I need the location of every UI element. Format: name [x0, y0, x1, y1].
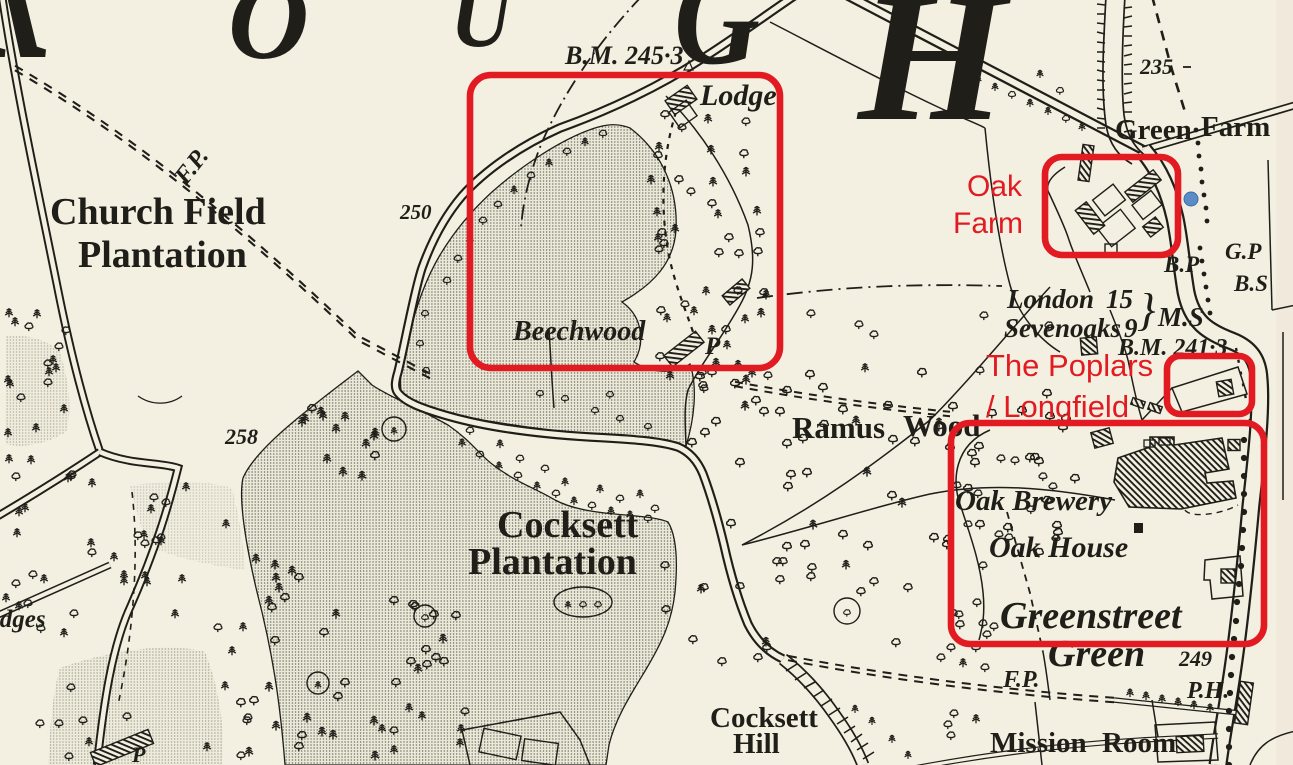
svg-text:Ramus: Ramus [792, 410, 885, 445]
svg-text:Plantation: Plantation [78, 234, 247, 276]
svg-text:Plantation: Plantation [468, 541, 637, 583]
svg-text:Hill: Hill [733, 728, 780, 760]
svg-text:Oak: Oak [967, 170, 1023, 203]
svg-text:R: R [0, 0, 51, 103]
svg-text:Oak House: Oak House [989, 531, 1128, 564]
svg-text:B.M. 245·3: B.M. 245·3 [564, 41, 683, 70]
svg-text:Lodges: Lodges [0, 606, 46, 633]
svg-text:G.P: G.P [1225, 239, 1262, 264]
svg-text:Cocksett: Cocksett [497, 504, 639, 546]
svg-text:249: 249 [1178, 646, 1212, 671]
svg-text:235: 235 [1139, 54, 1173, 79]
svg-text:258: 258 [224, 424, 258, 449]
svg-text:Farm: Farm [1201, 111, 1270, 143]
svg-text:Greenstreet: Greenstreet [1000, 595, 1183, 637]
svg-text:Mission: Mission [990, 727, 1087, 759]
svg-text:U: U [450, 0, 516, 65]
svg-text:The Poplars: The Poplars [986, 348, 1153, 383]
svg-text:P: P [704, 333, 721, 360]
svg-text:/ Longfield: / Longfield [986, 389, 1129, 424]
svg-text:Green: Green [1048, 633, 1145, 675]
svg-text:Sevenoaks: Sevenoaks [1004, 313, 1121, 343]
svg-text:H: H [856, 0, 1012, 160]
svg-text:Lodge: Lodge [699, 79, 777, 112]
svg-text:Farm: Farm [953, 207, 1023, 240]
svg-text:P.H.: P.H. [1186, 678, 1229, 704]
svg-text:London: London [1006, 284, 1094, 314]
svg-text:Room: Room [1102, 727, 1176, 759]
svg-text:Beechwood: Beechwood [512, 316, 646, 347]
svg-text:}: } [1137, 284, 1155, 335]
svg-text:Church Field: Church Field [50, 191, 266, 233]
svg-text:F.P.: F.P. [1002, 667, 1039, 693]
svg-text:Green: Green [1115, 114, 1192, 146]
svg-text:O: O [228, 0, 309, 83]
svg-text:15: 15 [1106, 284, 1133, 314]
svg-text:Oak Brewery: Oak Brewery [955, 485, 1112, 517]
svg-text:250: 250 [399, 200, 432, 224]
svg-text:P: P [131, 742, 146, 765]
svg-text:B.S: B.S [1233, 271, 1268, 296]
svg-text:M.S: M.S [1157, 302, 1204, 332]
